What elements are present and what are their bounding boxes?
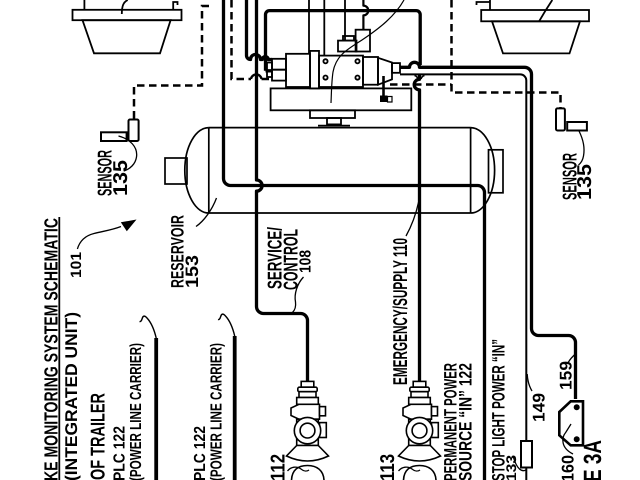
svg-text:149: 149 — [530, 393, 549, 422]
svg-text:101: 101 — [68, 252, 85, 278]
svg-text:PLC 122: PLC 122 — [112, 426, 129, 480]
svg-text:153: 153 — [182, 255, 202, 288]
svg-text:159: 159 — [557, 361, 576, 390]
svg-text:108: 108 — [298, 250, 315, 273]
svg-text:(INTEGRATED UNIT): (INTEGRATED UNIT) — [62, 312, 81, 480]
svg-text:E 3A: E 3A — [579, 440, 607, 480]
svg-text:(POWER LINE CARRIER): (POWER LINE CARRIER) — [209, 343, 226, 480]
svg-text:PLC 122: PLC 122 — [192, 426, 209, 480]
svg-text:112: 112 — [268, 454, 290, 480]
svg-text:SOURCE “IN” 122: SOURCE “IN” 122 — [456, 363, 476, 480]
svg-text:135: 135 — [574, 164, 596, 200]
svg-text:135: 135 — [110, 160, 132, 196]
svg-text:133: 133 — [503, 455, 519, 480]
svg-text:113: 113 — [377, 454, 399, 480]
svg-text:EMERGENCY/SUPPLY 110: EMERGENCY/SUPPLY 110 — [390, 238, 412, 385]
svg-text:KE MONITORING SYSTEM SCHEMATIC: KE MONITORING SYSTEM SCHEMATIC — [42, 218, 63, 480]
svg-text:160: 160 — [559, 455, 578, 480]
svg-text:OF TRAILER: OF TRAILER — [88, 393, 110, 480]
svg-text:(POWER LINE CARRIER): (POWER LINE CARRIER) — [128, 343, 145, 480]
